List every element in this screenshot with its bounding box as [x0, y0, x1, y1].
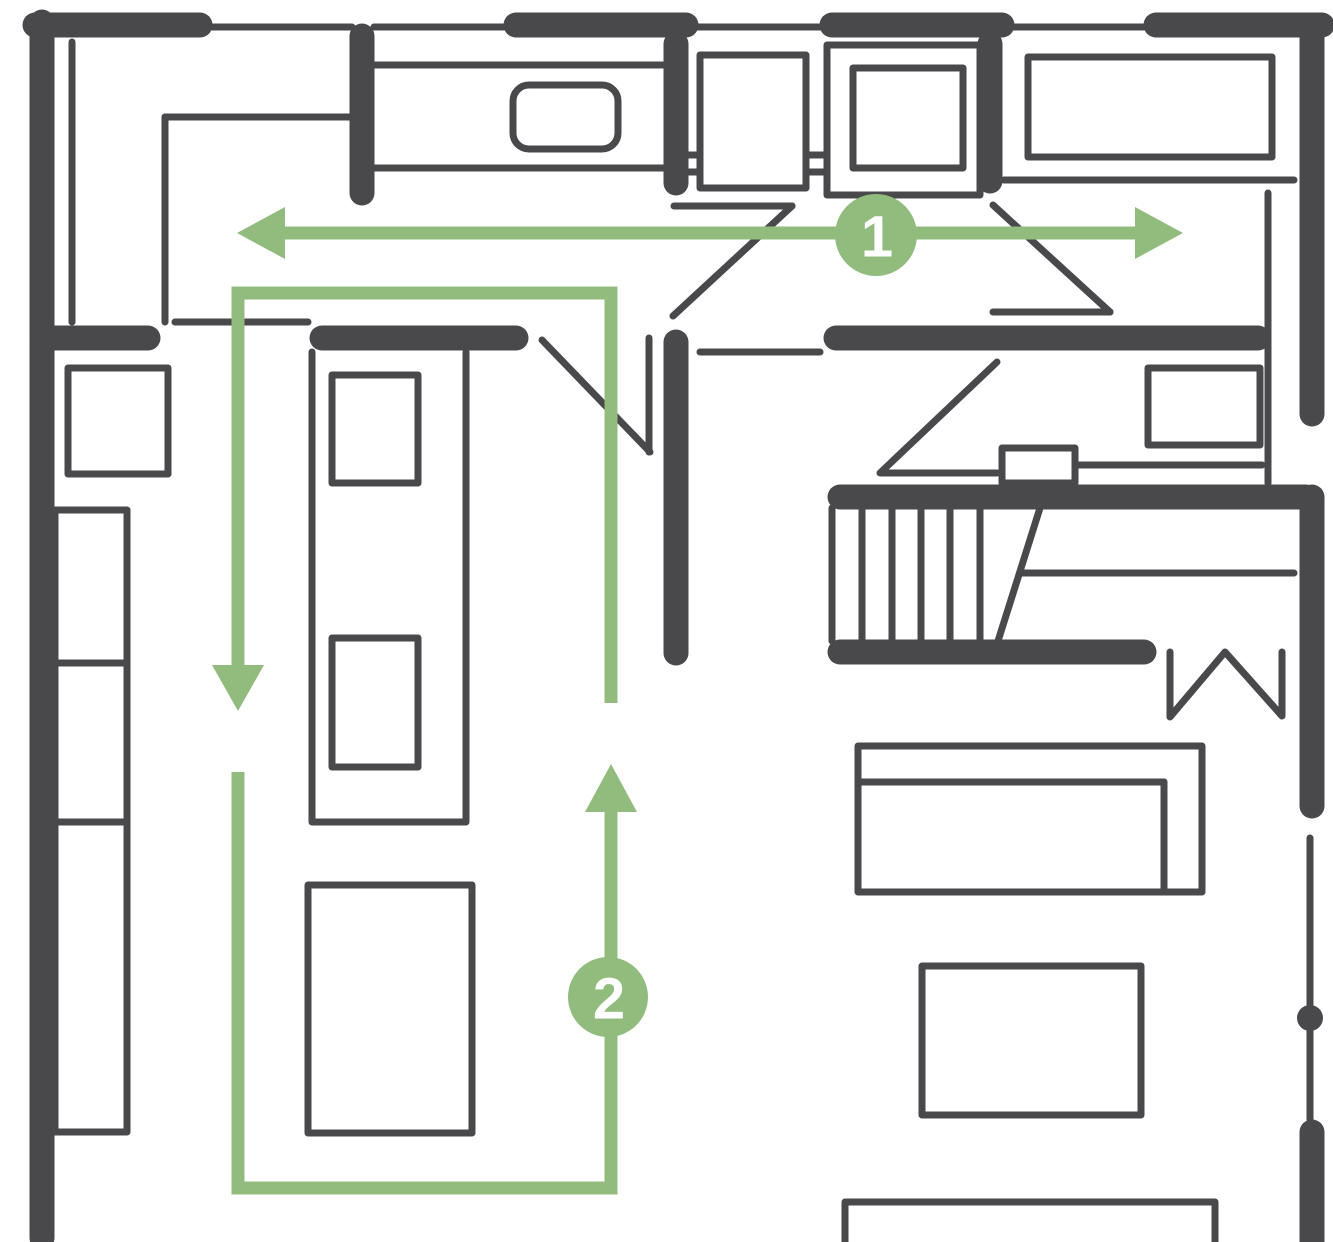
door-swing-stair-room	[880, 362, 997, 473]
dishwasher	[700, 55, 806, 188]
cabinet-mid	[55, 663, 127, 822]
dining-zone-rect	[308, 885, 472, 1133]
door-swing-island	[542, 340, 650, 452]
fridge	[1028, 57, 1272, 157]
floorplan-svg: 12	[0, 0, 1333, 1242]
wall-door-dot	[1297, 1005, 1323, 1031]
badge-2-label: 2	[593, 967, 623, 1032]
cabinet-tall	[55, 822, 127, 1132]
window-box-left	[68, 368, 168, 474]
tv-unit	[1148, 368, 1260, 445]
door-swing-hall-left	[673, 206, 792, 316]
stove-inner	[853, 68, 963, 168]
zigzag-symbol	[1170, 652, 1282, 717]
sink	[513, 85, 618, 149]
coffee-table	[922, 966, 1141, 1115]
circulation-arrow-1-head-left	[237, 207, 285, 259]
entry-cabinet	[1002, 448, 1075, 483]
sofa	[858, 746, 1202, 892]
media-rect-bottom	[845, 1202, 1215, 1242]
cabinet-upper	[55, 510, 127, 663]
door-swing-hall-right	[993, 205, 1110, 312]
floorplan: 12	[0, 0, 1333, 1242]
island-appliance-2	[332, 638, 418, 767]
badge-1-label: 1	[861, 205, 892, 270]
circulation-arrow-1-head-right	[1135, 207, 1183, 259]
circulation-loop-2-head-up	[585, 764, 637, 812]
island-appliance-1	[332, 375, 418, 483]
circulation-loop-2-head-down	[212, 665, 264, 711]
